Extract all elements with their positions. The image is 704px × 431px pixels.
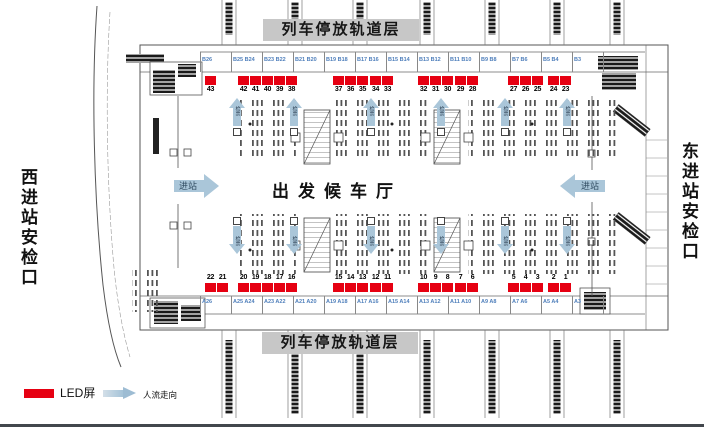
led-screen-number: 34 (372, 86, 379, 94)
escalator-to-track (424, 2, 431, 35)
led-screen-unit: 18 (262, 273, 273, 292)
led-screen-unit: 13 (357, 273, 368, 292)
led-screen-unit: 7 (455, 273, 466, 292)
ticket-gate-box (290, 128, 298, 136)
elevator-box (421, 133, 430, 142)
led-screen (532, 76, 543, 85)
led-screen-unit: 15 (333, 273, 344, 292)
gate-number-label: A3 (574, 299, 581, 306)
departure-hall-title: 出发候车厅 (272, 177, 402, 202)
check-ticket-arrow-up: 检票 (433, 98, 449, 126)
led-screen (262, 283, 273, 292)
led-screen-unit: 5 (508, 273, 519, 292)
led-screen-number: 37 (335, 86, 342, 94)
legend-flow-label: 人流走向 (143, 389, 177, 401)
gate-number-label: A7 A6 (512, 299, 527, 306)
check-ticket-arrow-up: 检票 (286, 98, 302, 126)
led-screen-number: 6 (471, 274, 475, 282)
led-screen-unit: 25 (532, 76, 543, 95)
led-screen-group: 3433 (370, 76, 393, 95)
led-screen-number: 24 (550, 86, 557, 94)
check-ticket-arrow-up: 检票 (497, 98, 513, 126)
led-screen-unit: 39 (274, 76, 285, 95)
led-screen-unit: 20 (238, 273, 249, 292)
led-screen-number: 21 (219, 274, 226, 282)
led-screen-unit: 14 (345, 273, 356, 292)
gate-number-label: B9 B8 (481, 57, 497, 64)
seating-area (336, 96, 428, 156)
check-ticket-arrow-up: 检票 (559, 98, 575, 126)
led-screen-number: 13 (359, 274, 366, 282)
ticket-gate-box (437, 128, 445, 136)
gate-number-label: B17 B16 (357, 57, 379, 64)
structural-column (391, 123, 394, 126)
check-ticket-label: 检票 (503, 106, 508, 116)
led-screen-unit: 22 (205, 273, 216, 292)
elevator-box (421, 241, 430, 250)
led-screen-number: 26 (522, 86, 529, 94)
led-screen-number: 9 (434, 274, 438, 282)
escalator-to-track (614, 2, 621, 35)
ticket-gate-box (367, 128, 375, 136)
check-ticket-arrow-down: 检票 (229, 226, 245, 254)
led-screen-unit: 23 (560, 76, 571, 95)
led-screen-number: 40 (264, 86, 271, 94)
gate-number-label: A17 A16 (357, 299, 379, 306)
led-screen-group: 1211 (370, 273, 393, 292)
check-ticket-label: 检票 (369, 236, 374, 246)
led-screen-number: 12 (372, 274, 379, 282)
gate-number-label: B7 B6 (512, 57, 528, 64)
led-screen (548, 283, 559, 292)
check-ticket-label: 检票 (565, 236, 570, 246)
led-screen (442, 283, 453, 292)
led-screen-group: 76 (455, 273, 478, 292)
gate-number-label: A15 A14 (388, 299, 410, 306)
diagonal-escalator (613, 105, 650, 137)
gate-number-label: A25 A24 (233, 299, 255, 306)
led-screen-unit: 31 (430, 76, 441, 95)
led-screen-unit: 2 (548, 273, 559, 292)
led-screen-unit: 9 (430, 273, 441, 292)
led-screen-number: 33 (384, 86, 391, 94)
led-screen-number: 30 (444, 86, 451, 94)
led-screen (250, 283, 261, 292)
track-level-banner-bottom: 列车停放轨道层 (262, 332, 418, 354)
check-ticket-label: 检票 (439, 236, 444, 246)
led-screen-number: 5 (512, 274, 516, 282)
led-screen-number: 8 (446, 274, 450, 282)
ticket-gate-box (367, 217, 375, 225)
led-screen-number: 36 (347, 86, 354, 94)
led-screen-number: 7 (459, 274, 463, 282)
led-screen-number: 1 (564, 274, 568, 282)
check-ticket-label: 检票 (235, 106, 240, 116)
legend-led-swatch (24, 389, 54, 398)
gate-number-label: B21 B20 (295, 57, 317, 64)
enter-station-arrow-east: 进站 (560, 174, 605, 198)
led-screen (430, 76, 441, 85)
escalator-to-track (424, 340, 431, 414)
seating-area (468, 214, 558, 274)
gate-number-label: B13 B12 (419, 57, 441, 64)
led-screen-number: 27 (510, 86, 517, 94)
led-screen (430, 283, 441, 292)
check-ticket-arrow-down: 检票 (433, 226, 449, 254)
led-screen-unit: 28 (467, 76, 478, 95)
led-screen-group: 43 (205, 76, 216, 95)
elevator-box (464, 133, 473, 142)
gate-number-label: A21 A20 (295, 299, 317, 306)
gate-number-label: A13 A12 (419, 299, 441, 306)
led-screen (520, 283, 531, 292)
arrow-stem (103, 390, 123, 397)
led-screen-unit: 33 (382, 76, 393, 95)
led-screen-number: 25 (534, 86, 541, 94)
led-screen (418, 283, 429, 292)
ticket-gate-box (501, 217, 509, 225)
gate-number-label: A9 A8 (481, 299, 496, 306)
led-screen-unit: 38 (286, 76, 297, 95)
led-screen (548, 76, 559, 85)
check-ticket-arrow-down: 检票 (497, 226, 513, 254)
led-screen (238, 76, 249, 85)
led-screen-group: 323130 (418, 76, 453, 95)
check-ticket-label: 检票 (292, 236, 297, 246)
led-screen-unit: 29 (455, 76, 466, 95)
led-screen-unit: 1 (560, 273, 571, 292)
led-screen-group: 151413 (333, 273, 368, 292)
gate-number-label: B23 B22 (264, 57, 286, 64)
led-screen-number: 4 (524, 274, 528, 282)
led-screen-group: 3938 (274, 76, 297, 95)
led-screen (274, 76, 285, 85)
escalator-to-track (614, 340, 621, 414)
west-security-entrance-label: 西进站安检口 (15, 168, 40, 288)
gate-pillar (170, 222, 177, 229)
led-screen (238, 283, 249, 292)
led-screen (508, 76, 519, 85)
gate-number-label: B5 B4 (543, 57, 559, 64)
led-screen (205, 283, 216, 292)
gate-pillar (184, 149, 191, 156)
led-screen (262, 76, 273, 85)
service-kiosk (181, 305, 201, 321)
led-screen-unit: 43 (205, 76, 216, 95)
gate-number-label: A26 (202, 299, 212, 306)
ticket-gate-box (563, 128, 571, 136)
led-screen-unit: 12 (370, 273, 381, 292)
diagonal-escalator (613, 213, 650, 245)
check-ticket-arrow-up: 检票 (363, 98, 379, 126)
led-screen-number: 17 (276, 274, 283, 282)
led-screen-unit: 37 (333, 76, 344, 95)
led-screen-group: 2423 (548, 76, 571, 95)
arrow-tip (123, 387, 136, 399)
escalator-to-track (489, 2, 496, 35)
led-screen (333, 76, 344, 85)
escalator-to-track (554, 340, 561, 414)
seating-area (468, 96, 558, 156)
led-screen-number: 16 (288, 274, 295, 282)
led-screen (467, 283, 478, 292)
gate-number-label: A19 A18 (326, 299, 348, 306)
led-screen-number: 19 (252, 274, 259, 282)
led-screen-unit: 8 (442, 273, 453, 292)
east-security-entrance-label: 东进站安检口 (676, 142, 701, 262)
led-screen-number: 22 (207, 274, 214, 282)
led-screen-unit: 3 (532, 273, 543, 292)
led-screen (560, 76, 571, 85)
led-screen-unit: 40 (262, 76, 273, 95)
gate-number-label: A11 A10 (450, 299, 471, 306)
led-screen (418, 76, 429, 85)
seating-area (132, 266, 160, 312)
gate-pillar (170, 149, 177, 156)
elevator-box (334, 241, 343, 250)
arrow-tip (204, 174, 219, 198)
led-screen-number: 32 (420, 86, 427, 94)
west-facade-inner-wall (107, 12, 130, 357)
ticket-gate-box (501, 128, 509, 136)
led-screen-unit: 26 (520, 76, 531, 95)
led-screen (455, 283, 466, 292)
led-screen-group: 201918 (238, 273, 273, 292)
led-screen (274, 283, 285, 292)
northeast-service-kiosk (602, 73, 636, 90)
structural-column (249, 249, 252, 252)
led-screen-number: 43 (207, 86, 214, 94)
led-screen-number: 38 (288, 86, 295, 94)
led-screen (382, 76, 393, 85)
led-screen-number: 14 (347, 274, 354, 282)
led-screen (532, 283, 543, 292)
led-screen-unit: 27 (508, 76, 519, 95)
led-screen-group: 272625 (508, 76, 543, 95)
led-screen (370, 76, 381, 85)
led-screen-unit: 34 (370, 76, 381, 95)
enter-station-arrow-west: 进站 (174, 174, 219, 198)
led-screen-unit: 41 (250, 76, 261, 95)
gate-number-label: A5 A4 (543, 299, 558, 306)
led-screen (442, 76, 453, 85)
check-ticket-arrow-up: 检票 (229, 98, 245, 126)
gate-number-label: B26 (202, 57, 212, 64)
escalator-to-track (226, 340, 233, 414)
check-ticket-label: 检票 (369, 106, 374, 116)
service-kiosk (153, 70, 175, 93)
led-screen-number: 41 (252, 86, 259, 94)
west-facade-wall (94, 6, 121, 367)
ticket-gate-box (233, 128, 241, 136)
led-screen-unit: 21 (217, 273, 228, 292)
gate-number-label: B19 B18 (326, 57, 348, 64)
led-screen (382, 283, 393, 292)
led-screen (357, 76, 368, 85)
track-level-banner-top: 列车停放轨道层 (263, 19, 419, 41)
check-ticket-label: 检票 (292, 106, 297, 116)
wall-pier (153, 118, 159, 154)
led-screen (217, 283, 228, 292)
led-screen-unit: 30 (442, 76, 453, 95)
check-ticket-label: 检票 (439, 106, 444, 116)
led-screen (455, 76, 466, 85)
led-screen-number: 39 (276, 86, 283, 94)
structural-column (249, 123, 252, 126)
escalator-to-track (226, 2, 233, 35)
seating-area (336, 214, 428, 274)
enter-station-label: 进站 (179, 180, 197, 192)
gate-number-label: B15 B14 (388, 57, 410, 64)
led-screen (370, 283, 381, 292)
check-ticket-arrow-down: 检票 (363, 226, 379, 254)
led-screen-number: 20 (240, 274, 247, 282)
diagonal-escalator-body (613, 213, 650, 245)
led-screen-number: 31 (432, 86, 439, 94)
ticket-gate-box (233, 217, 241, 225)
led-screen (560, 283, 571, 292)
enter-station-label: 进站 (581, 180, 599, 192)
led-screen-group: 373635 (333, 76, 368, 95)
led-screen-group: 2928 (455, 76, 478, 95)
led-screen-number: 29 (457, 86, 464, 94)
led-screen-unit: 42 (238, 76, 249, 95)
led-screen-unit: 35 (357, 76, 368, 95)
led-screen (286, 283, 297, 292)
gate-pillar (184, 222, 191, 229)
legend-led-label: LED屏 (60, 384, 95, 401)
led-screen-unit: 24 (548, 76, 559, 95)
check-ticket-label: 检票 (565, 106, 570, 116)
led-screen-unit: 16 (286, 273, 297, 292)
ticket-gate-box (563, 217, 571, 225)
image-bottom-border (0, 424, 704, 427)
flow-arrow-icon (103, 387, 137, 400)
led-screen-unit: 11 (382, 273, 393, 292)
led-screen-group: 2221 (205, 273, 228, 292)
led-screen-unit: 4 (520, 273, 531, 292)
led-screen-group: 21 (548, 273, 571, 292)
structural-column (531, 123, 534, 126)
led-screen (508, 283, 519, 292)
check-ticket-arrow-down: 检票 (286, 226, 302, 254)
escalator-to-track (489, 340, 496, 414)
led-screen-group: 1098 (418, 273, 453, 292)
led-screen (357, 283, 368, 292)
structural-column (531, 249, 534, 252)
led-screen-number: 23 (562, 86, 569, 94)
led-screen-number: 2 (552, 274, 556, 282)
led-screen (333, 283, 344, 292)
gate-number-label: A23 A22 (264, 299, 286, 306)
led-screen (286, 76, 297, 85)
structural-column (391, 249, 394, 252)
led-screen-unit: 19 (250, 273, 261, 292)
arrow-tip (560, 174, 575, 198)
check-ticket-label: 检票 (503, 236, 508, 246)
led-screen-number: 35 (359, 86, 366, 94)
led-screen-number: 28 (469, 86, 476, 94)
escalator-to-track (554, 2, 561, 35)
ticket-gate-box (290, 217, 298, 225)
led-screen (345, 283, 356, 292)
elevator-box (334, 133, 343, 142)
led-screen-group: 424140 (238, 76, 273, 95)
led-screen-unit: 6 (467, 273, 478, 292)
led-screen-group: 543 (508, 273, 543, 292)
led-screen (345, 76, 356, 85)
led-screen-number: 3 (536, 274, 540, 282)
led-screen-unit: 10 (418, 273, 429, 292)
led-screen (205, 76, 216, 85)
led-screen (467, 76, 478, 85)
service-kiosk (178, 64, 196, 77)
gate-number-label: B25 B24 (233, 57, 255, 64)
led-screen-group: 1716 (274, 273, 297, 292)
diagonal-escalator-body (613, 105, 650, 137)
gate-number-label: B11 B10 (450, 57, 471, 64)
ticket-gate-box (437, 217, 445, 225)
led-screen-number: 10 (420, 274, 427, 282)
led-screen (520, 76, 531, 85)
led-screen-number: 42 (240, 86, 247, 94)
led-screen-unit: 32 (418, 76, 429, 95)
led-screen-unit: 17 (274, 273, 285, 292)
led-screen-number: 11 (384, 274, 391, 282)
led-screen-number: 15 (335, 274, 342, 282)
gate-number-label: B3 (574, 57, 581, 64)
station-floorplan: 列车停放轨道层 列车停放轨道层 西进站安检口 东进站安检口 出发候车厅 进站 进… (0, 0, 704, 431)
led-screen-unit: 36 (345, 76, 356, 95)
led-screen-number: 18 (264, 274, 271, 282)
led-screen (250, 76, 261, 85)
elevator-box (464, 241, 473, 250)
check-ticket-label: 检票 (235, 236, 240, 246)
check-ticket-arrow-down: 检票 (559, 226, 575, 254)
